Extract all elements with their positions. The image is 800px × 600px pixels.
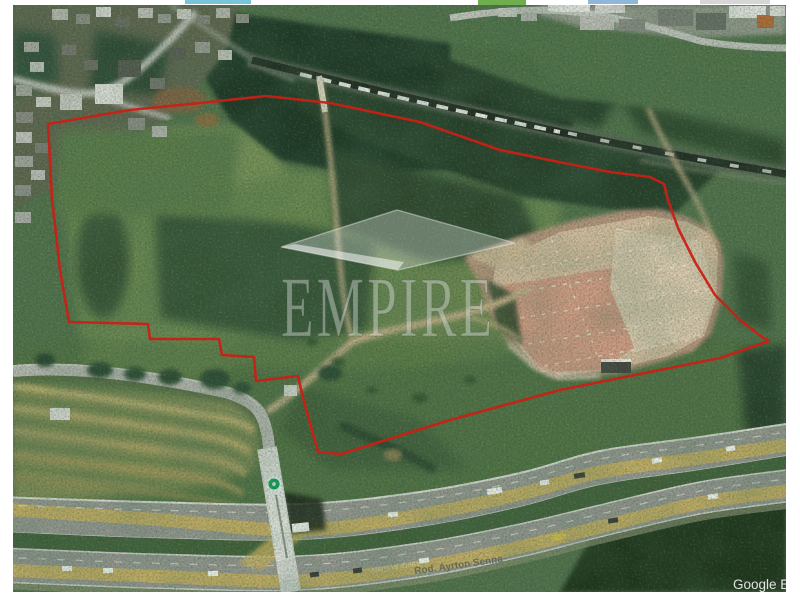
svg-text:EMPIRE: EMPIRE [281,260,495,355]
svg-text:Google E: Google E [733,577,789,592]
